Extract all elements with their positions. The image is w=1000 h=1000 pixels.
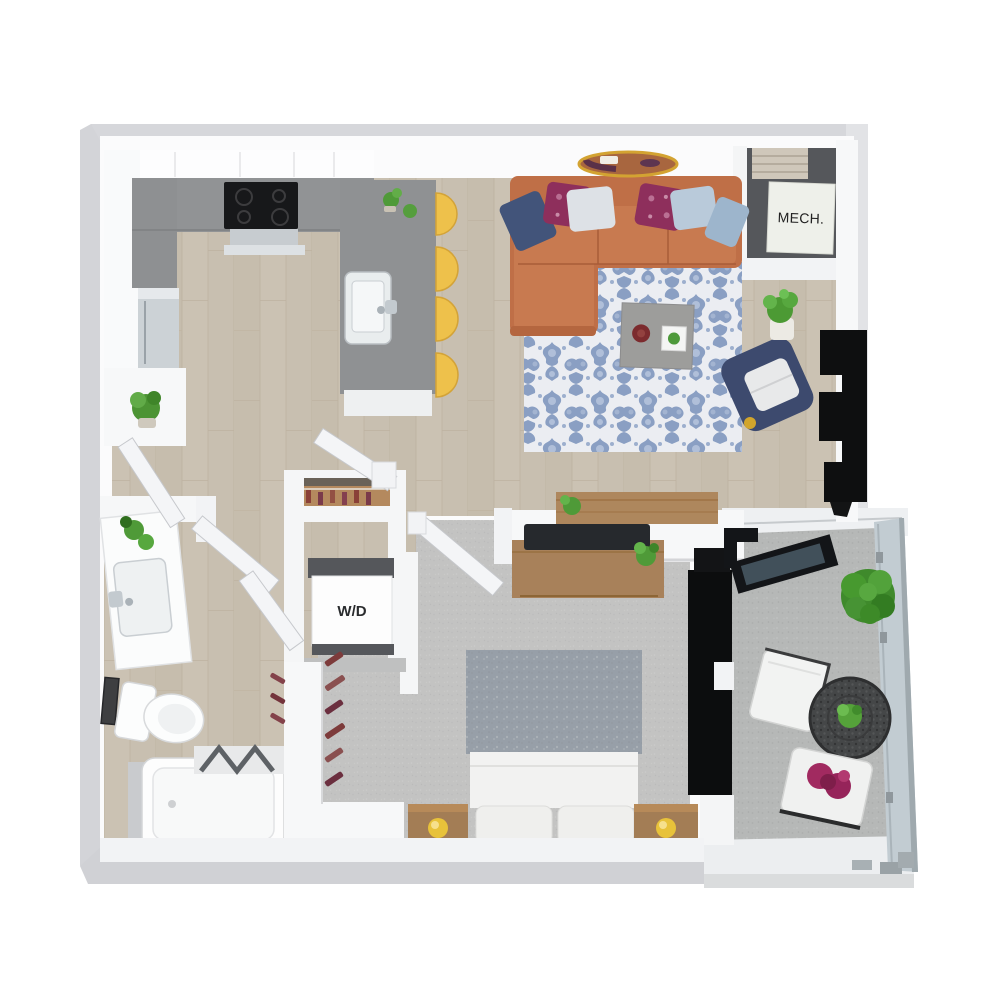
svg-text:MECH.: MECH. — [777, 209, 824, 227]
svg-text:W/D: W/D — [337, 603, 366, 620]
